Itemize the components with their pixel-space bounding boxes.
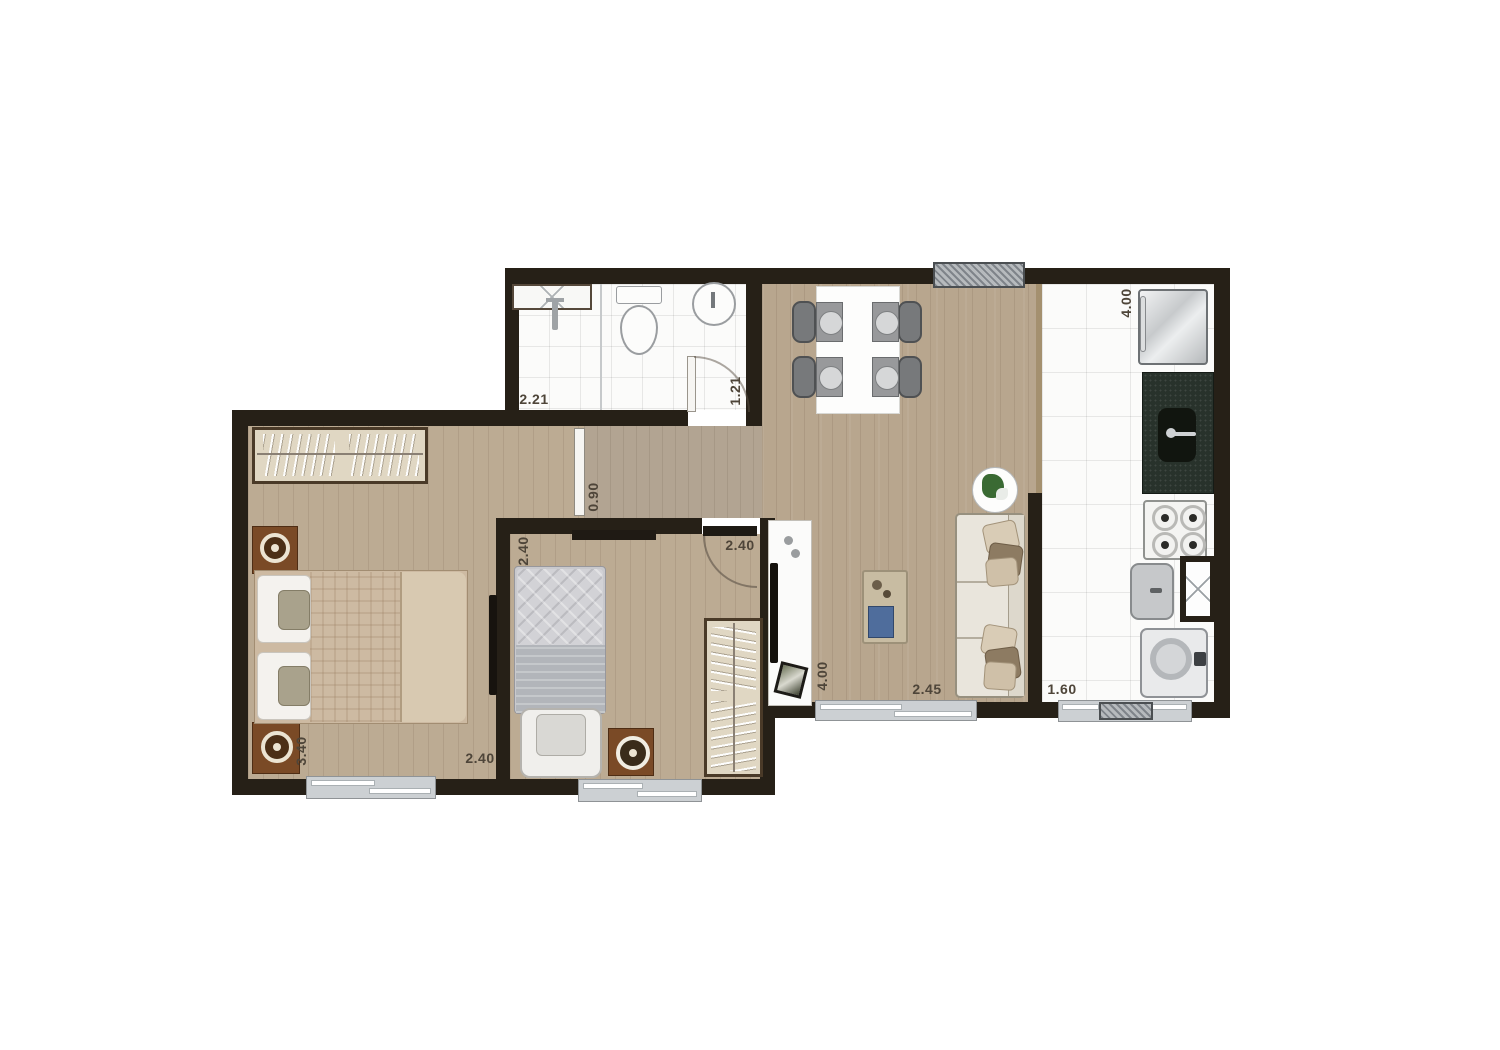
bedroom2-window [578, 779, 702, 802]
dining-chair [792, 356, 816, 398]
plant-icon-leaf [996, 488, 1008, 500]
master-bed-duvet [400, 572, 466, 722]
hall-floor [584, 426, 762, 518]
dim-living-depth: 4.00 [814, 661, 830, 690]
wall-right [1214, 268, 1230, 718]
washing-machine-panel [1194, 652, 1206, 666]
shower-fixture-icon [552, 300, 558, 330]
dim-living-width: 2.45 [912, 681, 941, 697]
wall-bedroom2-bottom-left [496, 779, 578, 795]
coffee-table-decor [872, 580, 882, 590]
refrigerator-handle [1140, 296, 1146, 352]
dining-chair [898, 301, 922, 343]
tv-icon [770, 563, 778, 663]
dim-bathroom-depth: 1.21 [727, 376, 743, 405]
wall-bottom-living-right [973, 702, 1060, 718]
kitchen-sink-faucet-base [1166, 428, 1176, 438]
stove-burner [1152, 505, 1178, 531]
wall-master-bedroom2 [496, 518, 510, 779]
laundry-window [1058, 700, 1192, 722]
dim-master-width: 2.40 [465, 750, 494, 766]
master-nightstand-lamp [260, 533, 290, 563]
dining-top-window [933, 262, 1025, 288]
sofa-cushion [983, 661, 1017, 691]
master-bed-accent-pillow [278, 666, 310, 706]
dining-chair [792, 301, 816, 343]
toilet-tank [616, 286, 662, 304]
bathroom-sink-faucet [711, 292, 715, 308]
single-bed-blanket [516, 645, 605, 713]
dim-master-depth: 3.40 [293, 736, 309, 765]
master-bedroom-window [306, 776, 436, 799]
dim-hall-width: 0.90 [585, 482, 601, 511]
master-bedroom-door [574, 428, 585, 516]
dining-chair-seat [816, 302, 843, 342]
shower-fixture-bar [546, 298, 564, 302]
bedroom2-shelf [572, 530, 656, 540]
bedroom2-door-leaf [703, 526, 757, 536]
bedroom2-armchair-cushion [536, 714, 586, 756]
wall-top [505, 268, 1230, 284]
single-bed-pillow-quilt [517, 569, 603, 645]
bedroom2-wardrobe [704, 618, 763, 777]
kitchen-floor-edge [1036, 284, 1042, 494]
tv-rack-decor [784, 536, 793, 545]
kitchen-cart-handle [1150, 588, 1162, 593]
washing-machine-drum [1150, 638, 1192, 680]
wall-kitchen-living [1028, 493, 1042, 702]
dim-bedroom2-depth: 2.40 [515, 536, 531, 565]
shower-divider [600, 284, 602, 410]
master-wardrobe [252, 427, 428, 484]
wall-bottom-laundry [1188, 702, 1230, 718]
dim-bathroom-width: 2.21 [519, 391, 548, 407]
master-wall-tv-icon [489, 595, 497, 695]
dining-chair [898, 356, 922, 398]
dim-bedroom2-width: 2.40 [725, 537, 754, 553]
wall-master-left [232, 410, 248, 795]
wall-master-bottom-right [434, 779, 496, 795]
wall-bedroom2-bottom-right [700, 779, 775, 795]
sofa-cushion [985, 557, 1019, 588]
coffee-table-decor [883, 590, 891, 598]
duct-shaft [1180, 556, 1216, 622]
wall-band-top-master-bathroom [232, 410, 688, 426]
living-balcony-window [815, 700, 977, 721]
floor-plan: 2.21 1.21 4.00 0.90 2.40 2.40 3.40 2.40 … [0, 0, 1500, 1050]
refrigerator [1138, 289, 1208, 365]
tv-rack-decor [791, 549, 800, 558]
bedroom2-lamp [616, 736, 650, 770]
dim-kitchen-depth: 4.00 [1118, 288, 1134, 317]
stove-burner [1152, 532, 1178, 558]
stove-burner [1180, 505, 1206, 531]
dining-chair-seat [816, 357, 843, 397]
master-bed-accent-pillow [278, 590, 310, 630]
stove-burner [1180, 532, 1206, 558]
master-bed-plaid [310, 572, 406, 722]
master-nightstand-lamp [261, 731, 293, 763]
coffee-table-book [868, 606, 894, 638]
dim-laundry-width: 1.60 [1047, 681, 1076, 697]
dining-chair-seat [872, 302, 899, 342]
dining-chair-seat [872, 357, 899, 397]
